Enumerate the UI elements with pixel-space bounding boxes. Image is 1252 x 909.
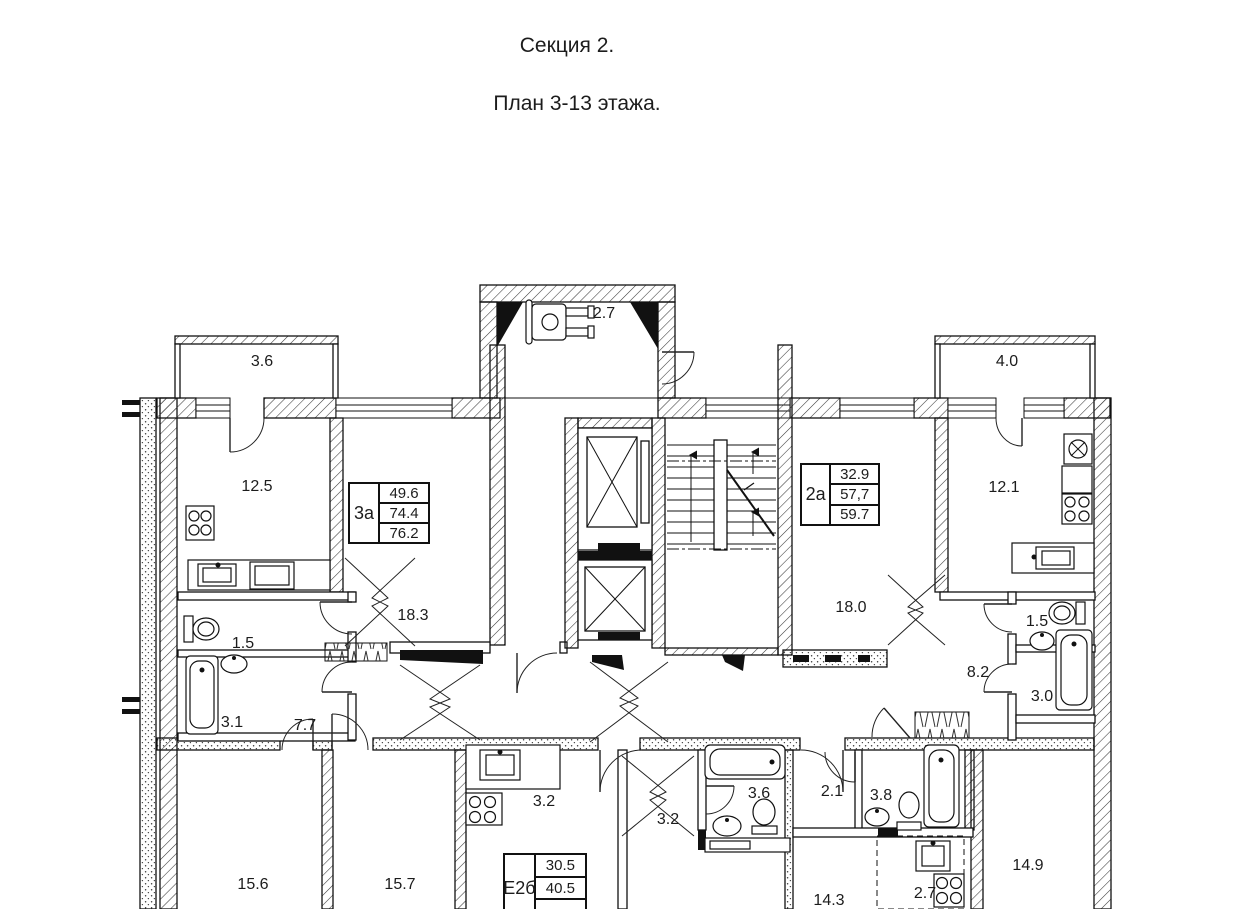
room-area-hall-bottom-right: 2.1 <box>821 783 843 801</box>
kitchen-right-fixtures <box>1012 434 1094 573</box>
staircase <box>667 440 776 550</box>
room-area-hall-bottom-center: 3.2 <box>657 811 679 829</box>
apartment-area-value: 76.2 <box>380 522 428 542</box>
room-area-balcony-left: 3.6 <box>251 353 273 371</box>
room-area-kitchen-bottom-center: 3.2 <box>533 793 555 811</box>
room-area-bathroom-right: 3.0 <box>1031 688 1053 706</box>
room-area-bedroom-bottom-right: 14.9 <box>1012 857 1043 875</box>
room-area-wc-left: 1.5 <box>232 635 254 653</box>
room-area-living-left: 18.3 <box>397 607 428 625</box>
apartment-type-label: Е2б <box>505 855 536 909</box>
room-area-stroller-room: 2.7 <box>593 305 615 323</box>
section-title: Секция 2. <box>447 34 687 58</box>
room-area-kitchen-niche: 2.7 <box>914 885 936 903</box>
room-area-bedroom-bottom-1: 15.6 <box>237 876 268 894</box>
apartment-type-label: 3а <box>350 484 380 542</box>
apartment-area-value: 30.5 <box>536 855 585 876</box>
kitchen-bottom-fixtures <box>466 745 560 825</box>
floor-plan-page: Секция 2. План 3-13 этажа. 3.6 12.5 18.3… <box>0 0 1252 909</box>
kitchen-left-fixtures <box>186 506 330 590</box>
room-area-kitchen-right: 12.1 <box>988 479 1019 497</box>
wc-left-fixtures <box>184 616 219 642</box>
room-area-room-bottom-right: 14.3 <box>813 892 844 909</box>
apartment-area-value <box>536 898 585 909</box>
vestibule-walls <box>480 285 675 398</box>
apartment-table-3a: 3а 49.6 74.4 76.2 <box>348 482 430 544</box>
apartment-area-value: 40.5 <box>536 876 585 899</box>
apartment-area-value: 49.6 <box>380 484 428 502</box>
apartment-area-value: 32.9 <box>831 465 878 483</box>
room-area-living-right: 18.0 <box>835 599 866 617</box>
room-area-bathroom-left: 3.1 <box>221 714 243 732</box>
room-area-hall-right: 8.2 <box>967 664 989 682</box>
room-area-bedroom-bottom-2: 15.7 <box>384 876 415 894</box>
apartment-area-value: 57,7 <box>831 483 878 503</box>
apartment-type-label: 2а <box>802 465 831 524</box>
room-area-hall-left: 7.7 <box>294 717 316 735</box>
wheelchair-icon <box>526 300 594 344</box>
room-area-kitchen-left: 12.5 <box>241 478 272 496</box>
room-area-bathroom-bottom-right: 3.8 <box>870 787 892 805</box>
elevator-shafts <box>565 418 665 648</box>
room-area-bathroom-bottom-center: 3.6 <box>748 785 770 803</box>
apartment-area-value: 59.7 <box>831 504 878 524</box>
apartment-area-value: 74.4 <box>380 502 428 522</box>
wc-right-fixtures <box>1049 602 1085 624</box>
floor-plan-drawing <box>0 0 1252 909</box>
room-area-wc-right: 1.5 <box>1026 613 1048 631</box>
apartment-table-2a: 2а 32.9 57,7 59.7 <box>800 463 880 526</box>
apartment-table-e2b: Е2б 30.5 40.5 <box>503 853 587 909</box>
plan-title: План 3-13 этажа. <box>457 92 697 116</box>
room-area-balcony-right: 4.0 <box>996 353 1018 371</box>
